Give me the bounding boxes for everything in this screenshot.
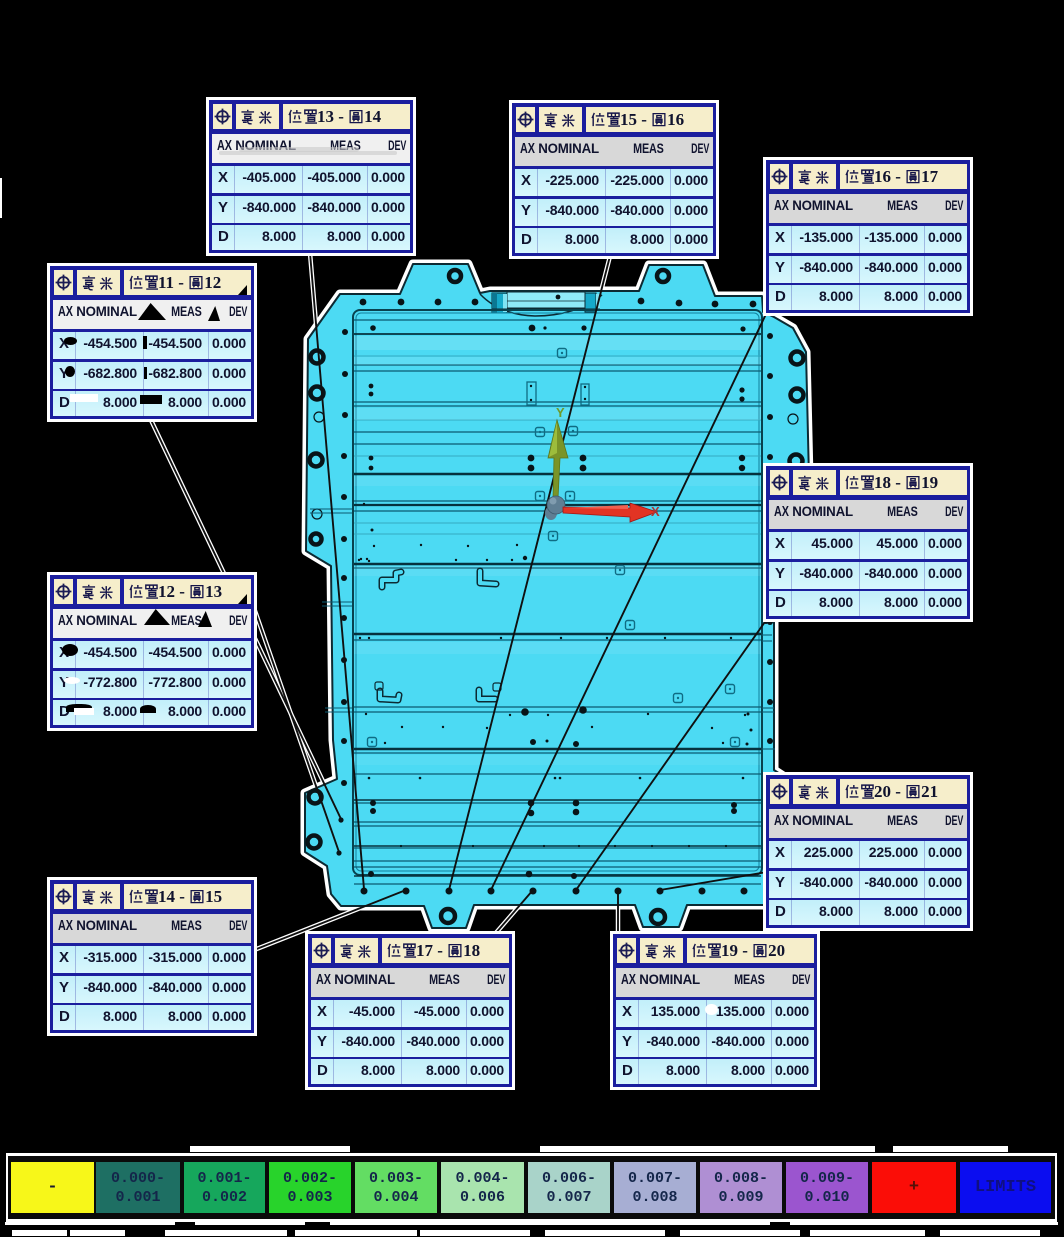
svg-text:Y: Y (556, 405, 565, 420)
svg-text:X: X (651, 504, 660, 519)
